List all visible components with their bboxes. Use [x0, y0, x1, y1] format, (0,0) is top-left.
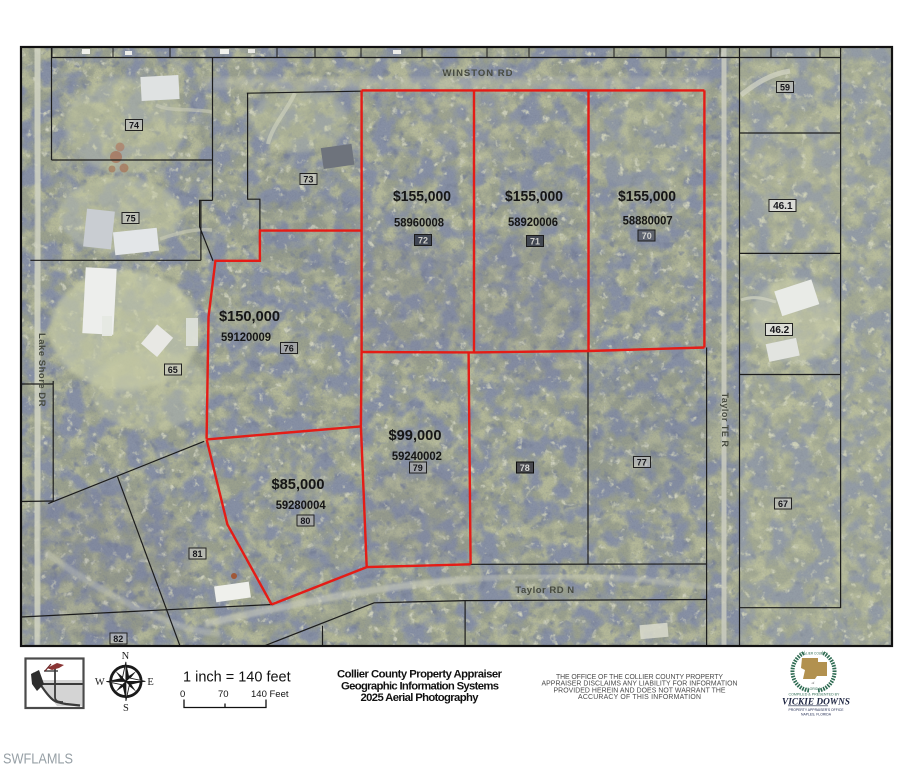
svg-text:58960008: 58960008 — [394, 218, 445, 230]
svg-text:S: S — [123, 703, 129, 714]
svg-text:59280004: 59280004 — [276, 500, 327, 512]
svg-text:FLORIDA: FLORIDA — [806, 687, 821, 691]
svg-text:1 inch = 140 feet: 1 inch = 140 feet — [183, 670, 291, 686]
svg-text:WINSTON RD: WINSTON RD — [442, 68, 513, 79]
svg-text:Lake Shore DR: Lake Shore DR — [36, 333, 47, 407]
svg-text:76: 76 — [284, 344, 294, 354]
svg-text:PROPERTY APPRAISER'S OFFICE: PROPERTY APPRAISER'S OFFICE — [789, 708, 845, 712]
svg-text:65: 65 — [168, 365, 178, 375]
svg-text:67: 67 — [778, 499, 788, 509]
svg-text:59120009: 59120009 — [221, 332, 271, 344]
svg-text:ACCURACY OF THIS INFORMATION: ACCURACY OF THIS INFORMATION — [578, 694, 701, 701]
svg-text:46.1: 46.1 — [773, 201, 793, 212]
svg-text:$155,000: $155,000 — [393, 188, 451, 205]
svg-text:82: 82 — [113, 634, 123, 644]
svg-text:73: 73 — [303, 175, 313, 185]
svg-text:N: N — [122, 651, 130, 662]
svg-text:$85,000: $85,000 — [272, 476, 325, 493]
svg-text:80: 80 — [300, 516, 310, 526]
svg-text:59240002: 59240002 — [392, 451, 442, 463]
svg-text:Geographic Information Systems: Geographic Information Systems — [341, 680, 499, 692]
svg-text:71: 71 — [530, 237, 540, 247]
svg-text:COLLIER COUNTY: COLLIER COUNTY — [800, 652, 829, 656]
svg-text:0: 0 — [180, 689, 185, 700]
svg-text:58880007: 58880007 — [623, 216, 673, 228]
svg-text:75: 75 — [126, 214, 136, 224]
svg-text:$155,000: $155,000 — [505, 188, 563, 205]
svg-text:Taylor TE R: Taylor TE R — [720, 393, 730, 448]
svg-text:$150,000: $150,000 — [219, 308, 280, 325]
svg-text:46.2: 46.2 — [770, 325, 790, 336]
svg-text:COMPILED & PRESENTED BY: COMPILED & PRESENTED BY — [789, 693, 841, 697]
svg-text:59: 59 — [780, 83, 790, 93]
svg-text:W: W — [95, 677, 105, 688]
svg-text:140 Feet: 140 Feet — [251, 689, 289, 700]
svg-text:70: 70 — [642, 231, 652, 241]
svg-text:77: 77 — [637, 458, 647, 468]
svg-text:72: 72 — [418, 236, 428, 246]
svg-text:Collier County Property Apprai: Collier County Property Appraiser — [337, 669, 503, 681]
svg-text:SWFLAMLS: SWFLAMLS — [3, 752, 73, 768]
svg-text:$155,000: $155,000 — [618, 188, 676, 205]
svg-text:78: 78 — [520, 463, 530, 473]
svg-text:2025 Aerial Photography: 2025 Aerial Photography — [361, 692, 480, 704]
svg-text:81: 81 — [192, 549, 202, 559]
svg-text:74: 74 — [129, 121, 139, 131]
svg-text:E: E — [147, 677, 153, 688]
svg-text:70: 70 — [218, 689, 229, 700]
svg-text:$99,000: $99,000 — [389, 427, 442, 444]
svg-text:Taylor RD N: Taylor RD N — [515, 585, 574, 596]
svg-text:58920006: 58920006 — [508, 217, 558, 229]
svg-text:79: 79 — [413, 463, 423, 473]
svg-text:NAPLES, FLORIDA: NAPLES, FLORIDA — [801, 712, 832, 716]
